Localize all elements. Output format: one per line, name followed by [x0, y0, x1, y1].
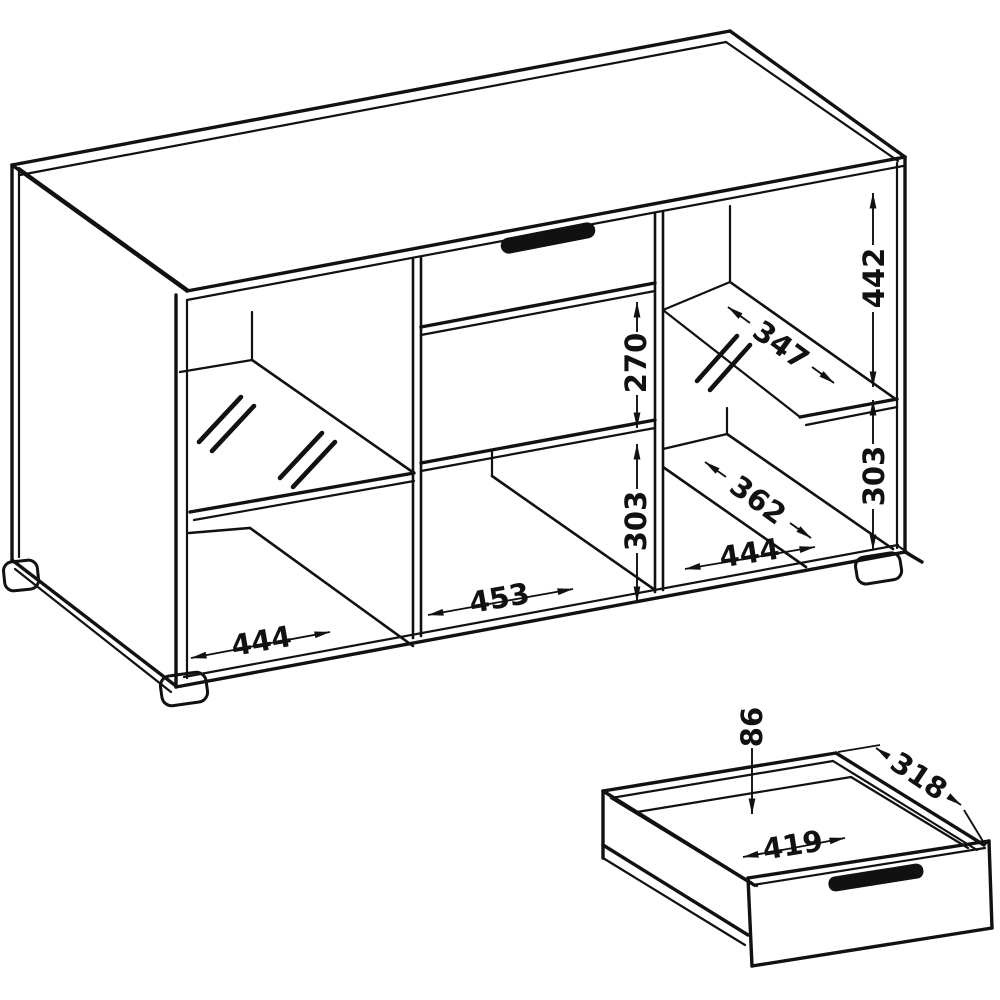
right-bay-glass-shelf	[663, 206, 897, 425]
dim-label-middle-lower-height: 303	[619, 491, 653, 552]
dim-label-glass-shelf-depth: 347	[747, 313, 816, 376]
dim-label-left-bay-width: 444	[229, 619, 295, 663]
cabinet-top-panel	[12, 31, 905, 300]
dim-label-drawer-depth: 318	[884, 745, 953, 807]
left-bay-glass-shelf	[180, 312, 414, 646]
cabinet-drawer-handle	[499, 221, 596, 255]
cabinet-dimensions: 442 303 270 303 444 453 444	[191, 193, 891, 663]
dim-label-right-lower-height: 303	[857, 446, 891, 507]
dim-label-middle-upper-height: 270	[619, 333, 653, 394]
dim-label-drawer-height: 86	[735, 707, 769, 747]
dim-label-drawer-inner-width: 419	[760, 823, 825, 866]
cabinet-left-side-panel	[12, 165, 187, 692]
drawer-detail-view: 86 318 419	[603, 707, 992, 966]
drawer-dimensions: 86 318 419	[735, 707, 984, 867]
cabinet-drawer-front	[421, 221, 655, 335]
dim-label-lower-shelf-depth: 362	[724, 468, 793, 531]
technical-drawing-sheet: 442 303 270 303 444 453 444	[0, 0, 1000, 1000]
dim-label-right-upper-height: 442	[857, 248, 891, 309]
cabinet-feet	[3, 552, 903, 707]
furniture-dimension-drawing: 442 303 270 303 444 453 444	[0, 0, 1000, 1000]
glass-hatch-left-bay	[199, 397, 335, 487]
cabinet-isometric-view: 442 303 270 303 444 453 444	[3, 31, 922, 707]
left-divider-bottom-edge	[189, 528, 413, 646]
drawer-handle	[827, 863, 924, 893]
